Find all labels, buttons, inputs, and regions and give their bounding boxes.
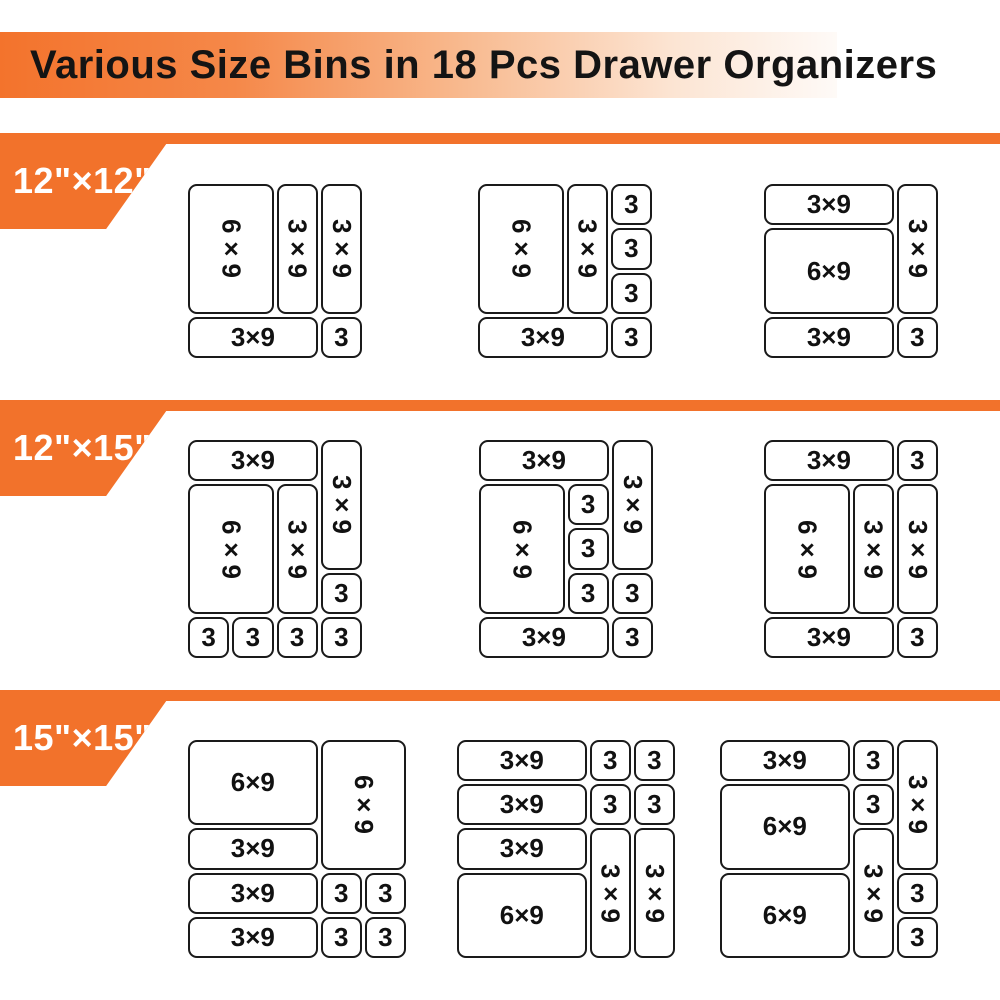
bin-size-label: 3 [866,745,880,776]
section-label-12x15: 12"×15" [0,427,152,469]
bin-3x9: 3×9 [188,873,318,914]
bin-6x9: 6×9 [479,484,565,614]
bin-size-label: 3 [910,922,924,953]
bin-size-label: 3×9 [807,622,851,653]
bin-size-label: 6×9 [215,219,246,278]
bin-3: 3 [611,273,652,314]
bin-3: 3 [611,228,652,269]
bin-size-label: 3 [624,322,638,353]
bin-size-label: 3 [910,878,924,909]
bin-size-label: 3×9 [500,833,544,864]
bin-size-label: 6×9 [763,900,807,931]
organizer-diagram-12x15-3: 3×936×93×93×93×93 [764,440,938,658]
bin-size-label: 3 [290,622,304,653]
bin-3: 3 [853,784,894,825]
bin-3x9: 3×9 [188,917,318,958]
section-tab: 12"×12" [0,133,174,229]
bin-3x9: 3×9 [188,317,318,358]
bin-3: 3 [612,573,653,614]
bin-size-label: 6×9 [215,520,246,579]
bin-3x9: 3×9 [897,184,938,314]
bin-size-label: 3×9 [807,189,851,220]
bin-3: 3 [188,617,229,658]
bin-size-label: 3×9 [521,322,565,353]
bin-3x9: 3×9 [457,828,587,869]
bin-6x9: 6×9 [188,184,274,314]
bin-size-label: 3 [334,922,348,953]
bin-size-label: 3 [910,622,924,653]
bin-size-label: 3×9 [858,864,889,923]
bin-3: 3 [568,573,609,614]
bin-size-label: 3 [647,745,661,776]
bin-size-label: 3 [624,233,638,264]
bin-size-label: 3 [201,622,215,653]
bin-size-label: 3 [246,622,260,653]
bin-6x9: 6×9 [188,740,318,825]
bin-size-label: 3 [378,878,392,909]
bin-3: 3 [568,528,609,569]
bin-size-label: 3 [603,789,617,820]
bin-3x9: 3×9 [478,317,608,358]
bin-size-label: 3 [624,278,638,309]
bin-6x9: 6×9 [720,784,850,869]
bin-size-label: 3×9 [763,745,807,776]
bin-size-label: 3×9 [500,745,544,776]
bin-3x9: 3×9 [897,740,938,870]
bin-size-label: 3 [581,533,595,564]
bin-size-label: 3×9 [572,219,603,278]
bin-3: 3 [897,440,938,481]
bin-3: 3 [321,873,362,914]
bin-3x9: 3×9 [321,440,362,570]
bin-3: 3 [321,317,362,358]
bin-size-label: 3×9 [522,622,566,653]
bin-size-label: 3 [378,922,392,953]
bin-size-label: 3 [866,789,880,820]
page-title: Various Size Bins in 18 Pcs Drawer Organ… [0,43,937,88]
bin-size-label: 3×9 [231,922,275,953]
bin-3: 3 [611,184,652,225]
bin-size-label: 3 [334,578,348,609]
bin-6x9: 6×9 [720,873,850,958]
bin-3x9: 3×9 [277,484,318,614]
bin-size-label: 3×9 [326,219,357,278]
bin-3: 3 [897,917,938,958]
bin-3: 3 [232,617,273,658]
bin-3x9: 3×9 [321,184,362,314]
bin-size-label: 3 [625,578,639,609]
bin-3x9: 3×9 [188,828,318,869]
bin-size-label: 3 [624,189,638,220]
bin-size-label: 3×9 [231,833,275,864]
bin-6x9: 6×9 [478,184,564,314]
bin-size-label: 6×9 [348,775,379,834]
bin-3x9: 3×9 [897,484,938,614]
section-label-12x12: 12"×12" [0,160,152,202]
bin-3: 3 [277,617,318,658]
bin-3: 3 [853,740,894,781]
organizer-diagram-12x15-2: 3×93×96×933333×93 [479,440,653,658]
bin-size-label: 3 [581,489,595,520]
bin-size-label: 3 [910,445,924,476]
bin-size-label: 6×9 [506,520,537,579]
organizer-diagram-15x15-3: 3×933×96×933×96×933 [720,740,938,958]
section-tab: 12"×15" [0,400,174,496]
bin-size-label: 3×9 [326,475,357,534]
bin-6x9: 6×9 [457,873,587,958]
bin-3x9: 3×9 [457,740,587,781]
organizer-diagram-12x12-2: 6×93×93333×93 [478,184,652,358]
bin-size-label: 3×9 [902,775,933,834]
bin-3x9: 3×9 [764,184,894,225]
bin-3x9: 3×9 [612,440,653,570]
bin-size-label: 3 [334,622,348,653]
bin-3: 3 [568,484,609,525]
bin-3: 3 [321,617,362,658]
bin-3x9: 3×9 [720,740,850,781]
bin-size-label: 6×9 [807,256,851,287]
bin-3x9: 3×9 [277,184,318,314]
bin-size-label: 6×9 [231,767,275,798]
bin-3: 3 [634,784,675,825]
bin-6x9: 6×9 [321,740,406,870]
bin-3: 3 [897,617,938,658]
bin-6x9: 6×9 [764,484,850,614]
bin-size-label: 6×9 [505,219,536,278]
bin-3: 3 [365,873,406,914]
bin-3x9: 3×9 [188,440,318,481]
bin-3: 3 [590,740,631,781]
bin-3: 3 [897,317,938,358]
bin-3: 3 [321,573,362,614]
bin-3: 3 [612,617,653,658]
organizer-diagram-12x12-1: 6×93×93×93×93 [188,184,362,358]
bin-size-label: 3×9 [595,864,626,923]
bin-3x9: 3×9 [634,828,675,958]
bin-3x9: 3×9 [590,828,631,958]
bin-size-label: 3×9 [902,520,933,579]
bin-size-label: 3×9 [858,520,889,579]
bin-size-label: 3×9 [231,322,275,353]
bin-size-label: 6×9 [791,520,822,579]
bin-3x9: 3×9 [567,184,608,314]
bin-size-label: 3×9 [522,445,566,476]
bin-size-label: 3×9 [500,789,544,820]
bin-size-label: 3 [334,878,348,909]
bin-3x9: 3×9 [853,828,894,958]
bin-3: 3 [590,784,631,825]
bin-size-label: 3 [603,745,617,776]
organizer-diagram-15x15-1: 6×96×93×93×9333×933 [188,740,406,958]
bin-6x9: 6×9 [764,228,894,314]
bin-3: 3 [897,873,938,914]
bin-size-label: 6×9 [763,811,807,842]
bin-3x9: 3×9 [479,440,609,481]
bin-size-label: 3 [625,622,639,653]
section-label-15x15: 15"×15" [0,717,152,759]
bin-3x9: 3×9 [853,484,894,614]
title-banner: Various Size Bins in 18 Pcs Drawer Organ… [0,32,837,98]
bin-6x9: 6×9 [188,484,274,614]
organizer-diagram-12x15-1: 3×93×96×93×933333 [188,440,362,658]
section-tab: 15"×15" [0,690,174,786]
bin-3x9: 3×9 [764,440,894,481]
bin-3x9: 3×9 [764,317,894,358]
bin-size-label: 3×9 [639,864,670,923]
bin-size-label: 3×9 [902,219,933,278]
bin-size-label: 3 [910,322,924,353]
bin-size-label: 3 [647,789,661,820]
bin-size-label: 3×9 [282,219,313,278]
bin-3x9: 3×9 [764,617,894,658]
bin-3x9: 3×9 [479,617,609,658]
bin-3x9: 3×9 [457,784,587,825]
bin-size-label: 3×9 [282,520,313,579]
bin-size-label: 3 [581,578,595,609]
bin-size-label: 3×9 [231,445,275,476]
bin-3: 3 [611,317,652,358]
bin-3: 3 [634,740,675,781]
infographic-page: Various Size Bins in 18 Pcs Drawer Organ… [0,0,1000,1000]
bin-size-label: 3×9 [231,878,275,909]
organizer-diagram-12x12-3: 3×93×96×93×93 [764,184,938,358]
bin-size-label: 3×9 [807,322,851,353]
bin-3: 3 [321,917,362,958]
bin-size-label: 3×9 [807,445,851,476]
bin-size-label: 6×9 [500,900,544,931]
bin-size-label: 3×9 [617,475,648,534]
bin-3: 3 [365,917,406,958]
bin-size-label: 3 [334,322,348,353]
organizer-diagram-15x15-2: 3×9333×9333×96×93×93×9 [457,740,675,958]
